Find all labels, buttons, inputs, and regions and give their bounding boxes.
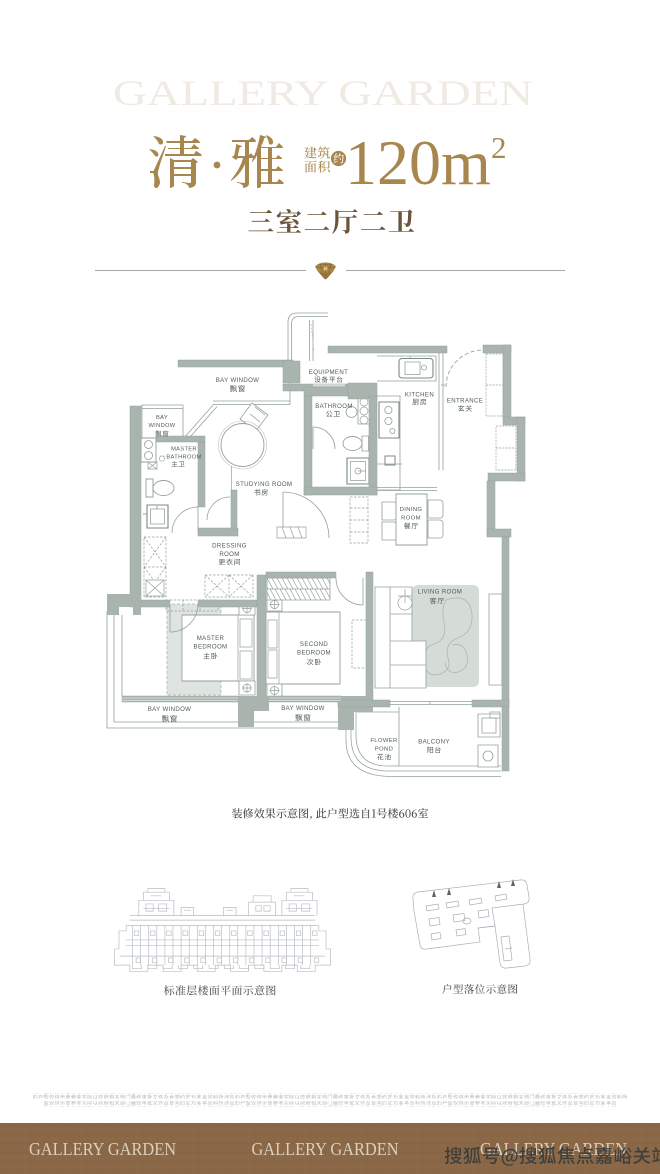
- svg-text:BEDROOM: BEDROOM: [194, 644, 228, 651]
- svg-text:BATHROOM: BATHROOM: [315, 403, 353, 410]
- svg-text:MASTER: MASTER: [171, 447, 197, 453]
- svg-text:BAY WINDOW: BAY WINDOW: [281, 705, 325, 712]
- svg-text:DRESSING: DRESSING: [212, 543, 247, 550]
- svg-text:BAY: BAY: [156, 415, 168, 421]
- svg-text:BAY WINDOW: BAY WINDOW: [216, 377, 260, 384]
- svg-text:GALLERY GARDEN: GALLERY GARDEN: [29, 1139, 176, 1159]
- svg-text:STUDYING ROOM: STUDYING ROOM: [236, 481, 293, 488]
- svg-text:ROOM: ROOM: [401, 516, 421, 522]
- svg-text:EQUIPMENT: EQUIPMENT: [309, 369, 348, 376]
- svg-text:KITCHEN: KITCHEN: [405, 392, 434, 399]
- svg-text:SECOND: SECOND: [300, 641, 328, 648]
- svg-text:BAY WINDOW: BAY WINDOW: [148, 706, 192, 713]
- svg-text:WINDOW: WINDOW: [148, 423, 175, 429]
- svg-text:ROOM: ROOM: [219, 551, 239, 558]
- svg-text:120m: 120m: [345, 127, 491, 198]
- svg-text:BALCONY: BALCONY: [418, 739, 450, 746]
- svg-text:POND: POND: [375, 747, 393, 753]
- svg-text:2: 2: [491, 130, 507, 165]
- svg-text:MASTER: MASTER: [197, 635, 225, 642]
- svg-text:GALLERY GARDEN: GALLERY GARDEN: [252, 1139, 399, 1159]
- svg-text:DINING: DINING: [400, 507, 423, 513]
- svg-text:BATHROOM: BATHROOM: [166, 455, 201, 461]
- svg-text:GALLERY GARDEN: GALLERY GARDEN: [113, 73, 533, 113]
- svg-text:FLOWER: FLOWER: [370, 738, 397, 744]
- svg-text:BEDROOM: BEDROOM: [297, 650, 331, 657]
- svg-text:ENTRANCE: ENTRANCE: [447, 398, 483, 405]
- svg-text:LIVING ROOM: LIVING ROOM: [418, 589, 462, 596]
